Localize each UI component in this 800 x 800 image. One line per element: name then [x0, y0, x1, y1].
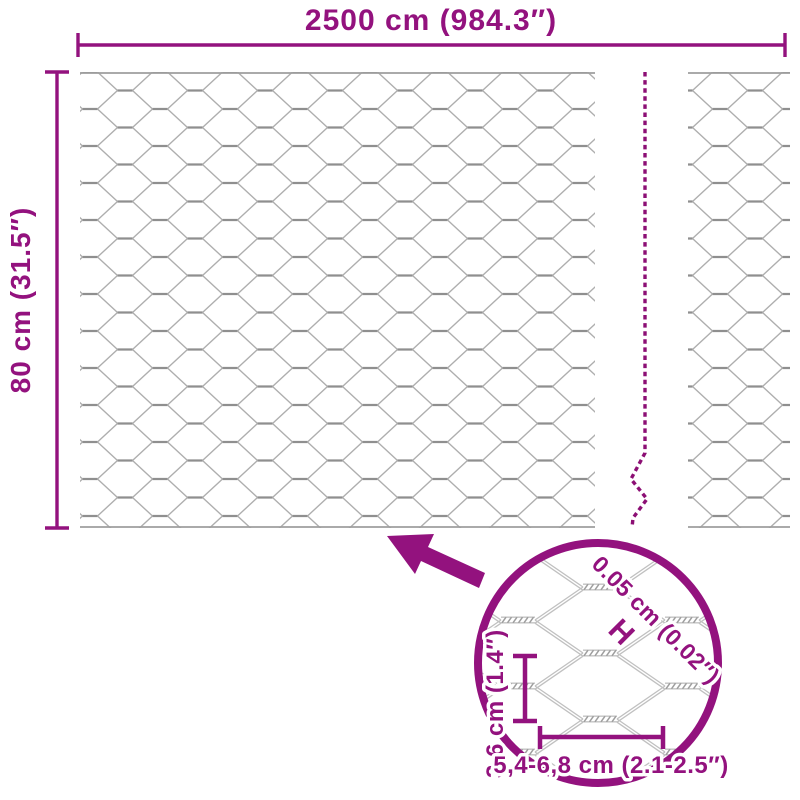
- detail-magnifier: 0.05 cm (0.02″) H 3,6 cm (1.4″) 5,4-6,8 …: [466, 531, 730, 795]
- mesh-width-label: 5,4-6,8 cm (2.1-2.5″): [493, 752, 728, 779]
- mesh-right-panel: [688, 72, 790, 528]
- diagram-canvas: 2500 cm (984.3″) 80 cm (31.5″) 0.05 cm (…: [0, 0, 800, 800]
- mesh-left-panel: [80, 72, 595, 528]
- break-dashed-line: [631, 72, 647, 528]
- width-dimension: 2500 cm (984.3″): [78, 4, 785, 57]
- width-dimension-label: 2500 cm (984.3″): [305, 4, 557, 37]
- height-dimension-label: 80 cm (31.5″): [5, 207, 36, 394]
- product-dimension-diagram: 2500 cm (984.3″) 80 cm (31.5″) 0.05 cm (…: [0, 0, 800, 800]
- height-dimension-line: [45, 72, 69, 528]
- height-dimension: 80 cm (31.5″): [5, 72, 69, 528]
- zoom-arrow-icon: [387, 534, 485, 588]
